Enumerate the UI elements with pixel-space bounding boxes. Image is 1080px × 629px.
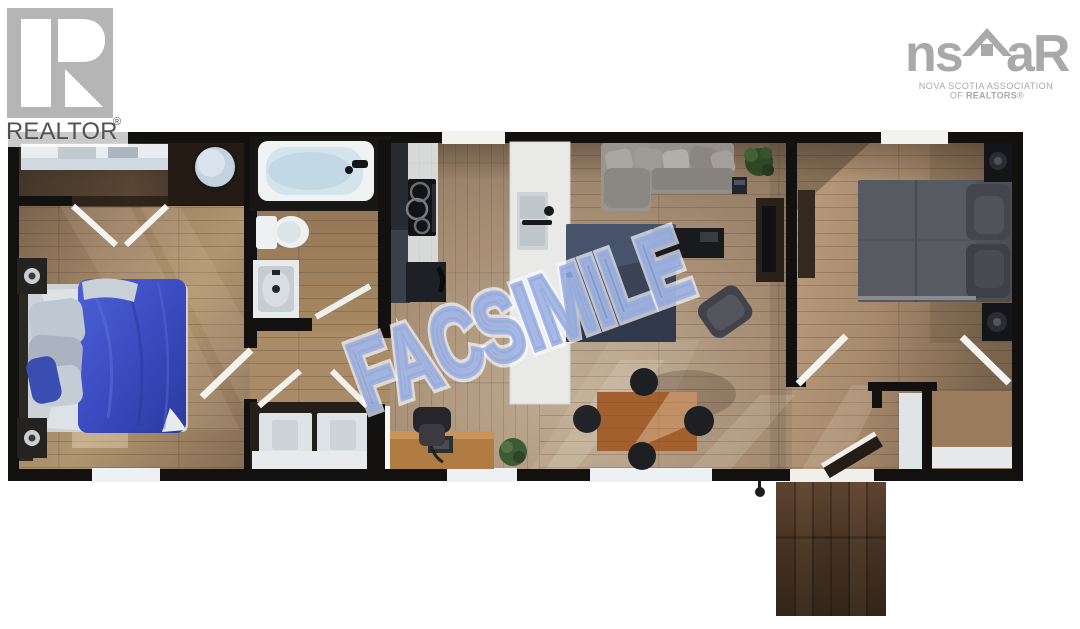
svg-text:REALTOR: REALTOR — [6, 118, 118, 145]
svg-text:OF REALTORS®: OF REALTORS® — [950, 91, 1024, 101]
svg-text:aR: aR — [1006, 25, 1070, 83]
svg-text:®: ® — [113, 116, 121, 128]
svg-text:NOVA SCOTIA ASSOCIATION: NOVA SCOTIA ASSOCIATION — [919, 81, 1053, 91]
svg-text:ns: ns — [905, 25, 962, 83]
